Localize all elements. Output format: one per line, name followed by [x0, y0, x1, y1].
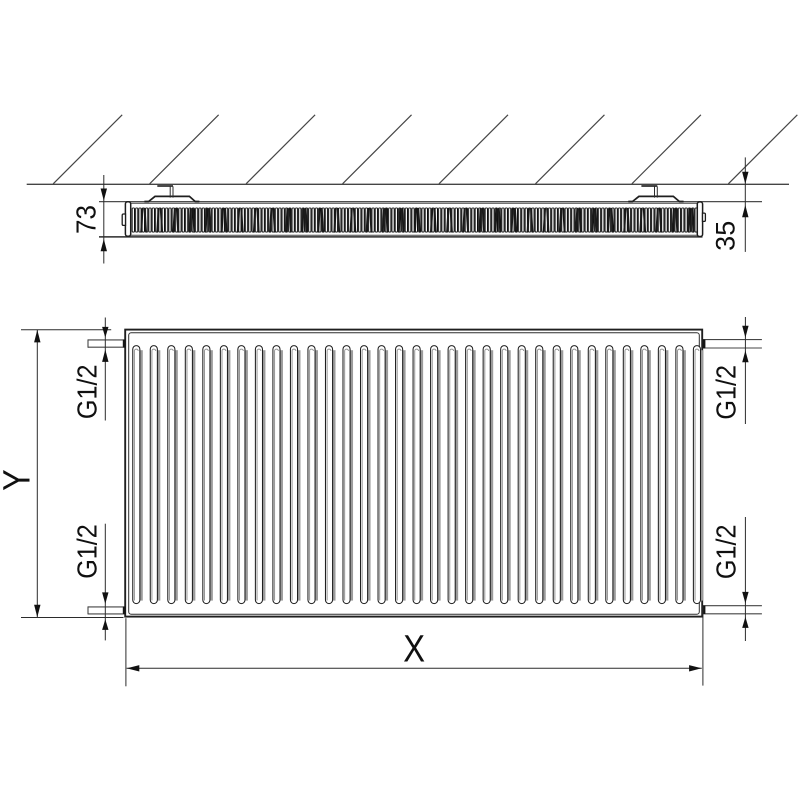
svg-text:X: X [403, 627, 425, 670]
svg-text:G1/2: G1/2 [710, 524, 742, 579]
svg-text:Y: Y [0, 469, 38, 491]
svg-text:73: 73 [71, 205, 102, 234]
svg-text:35: 35 [711, 221, 741, 251]
svg-text:G1/2: G1/2 [710, 365, 742, 420]
svg-text:G1/2: G1/2 [71, 524, 103, 579]
svg-text:G1/2: G1/2 [71, 364, 103, 419]
